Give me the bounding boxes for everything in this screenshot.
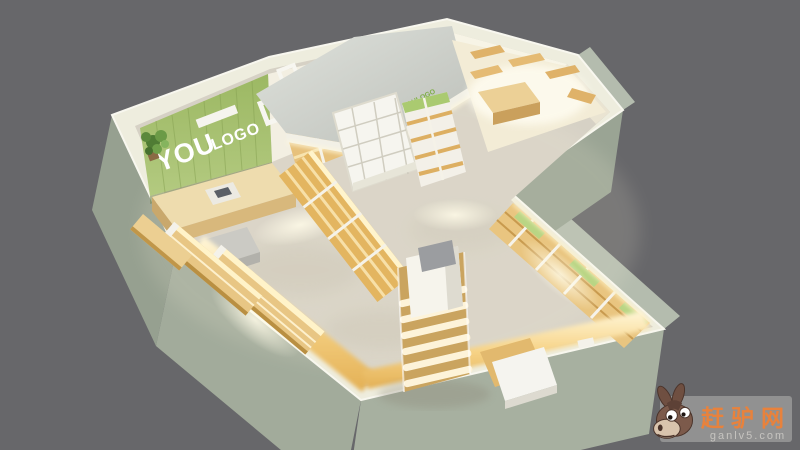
watermark-site-name: 赶驴网 [701, 405, 791, 431]
island-shadow [378, 380, 490, 408]
watermark-domain: ganlv5.com [710, 430, 786, 442]
store-render-svg: YOU LOGO [0, 0, 800, 450]
store-render-image: YOU LOGO [0, 0, 800, 450]
